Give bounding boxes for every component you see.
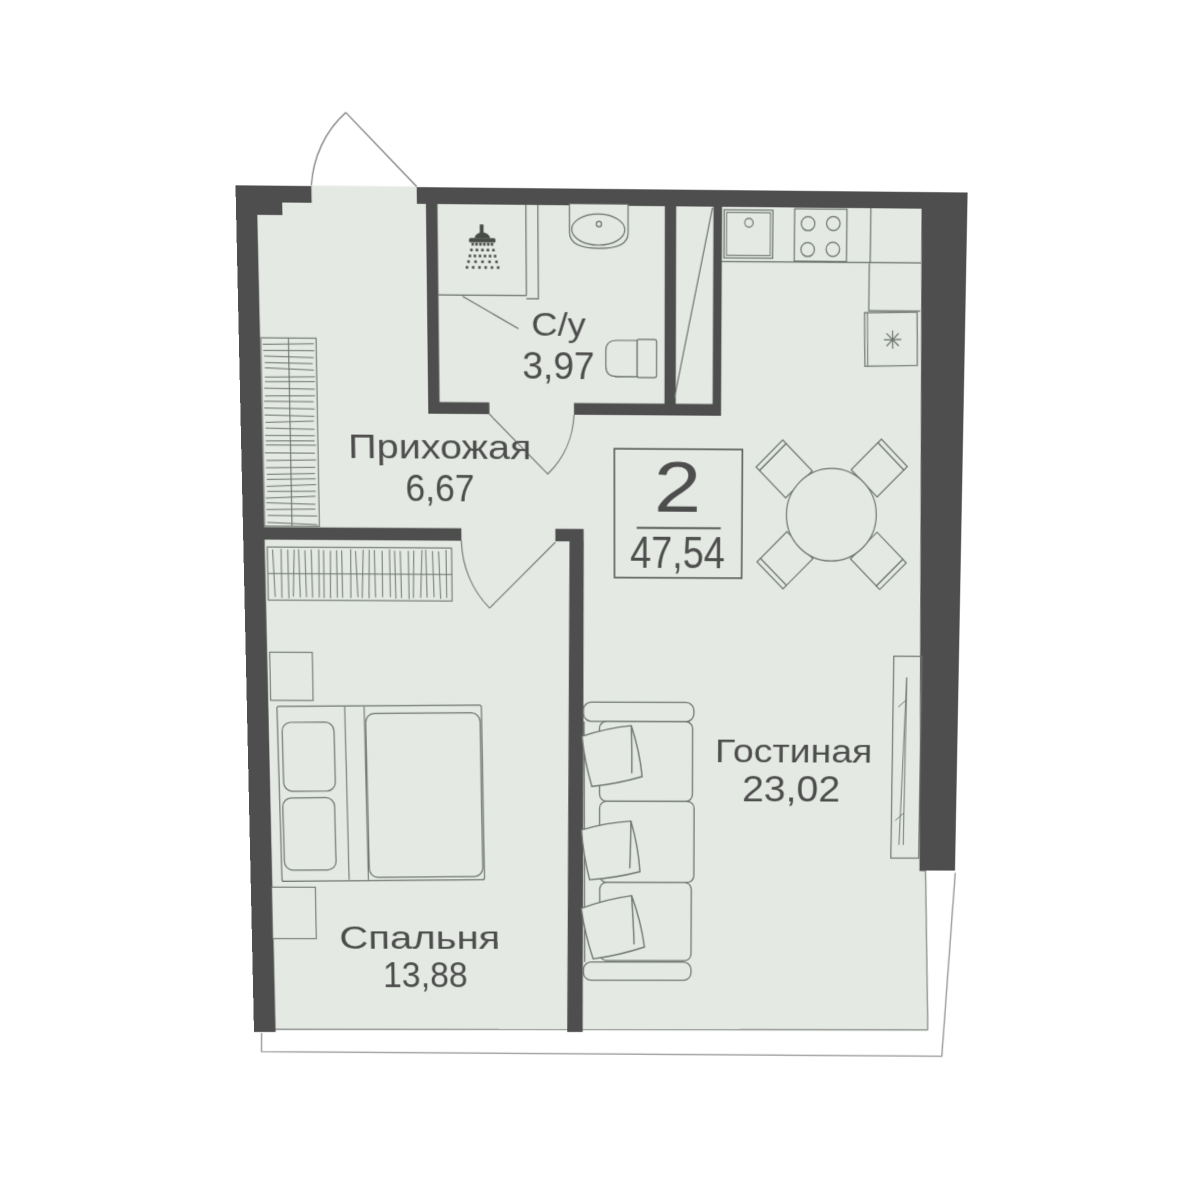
svg-text:Прихожая: Прихожая <box>348 428 531 468</box>
svg-text:Спальня: Спальня <box>339 920 500 956</box>
svg-text:6,67: 6,67 <box>405 469 475 510</box>
svg-text:Гостиная: Гостиная <box>715 733 873 770</box>
svg-text:23,02: 23,02 <box>742 770 841 810</box>
svg-text:3,97: 3,97 <box>522 346 595 388</box>
svg-text:47,54: 47,54 <box>630 529 725 579</box>
svg-text:13,88: 13,88 <box>383 957 468 996</box>
svg-text:С/у: С/у <box>531 307 586 344</box>
svg-text:2: 2 <box>654 447 701 528</box>
